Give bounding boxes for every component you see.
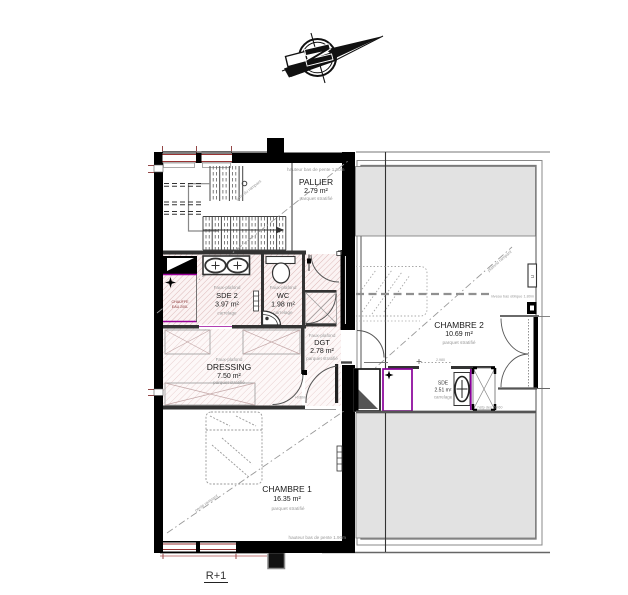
svg-text:Faux-plafond: Faux-plafond <box>270 285 297 290</box>
svg-text:carrelage: carrelage <box>273 310 293 315</box>
svg-text:parquet stratifié: parquet stratifié <box>306 356 338 361</box>
svg-text:Faux-plafond: Faux-plafond <box>214 285 241 290</box>
svg-text:SDE: SDE <box>438 381 449 387</box>
svg-text:hauteur bas de pente 1.90m: hauteur bas de pente 1.90m <box>287 167 345 172</box>
svg-text:DGT: DGT <box>314 338 330 347</box>
svg-text:10.69 m²: 10.69 m² <box>445 331 473 338</box>
svg-text:parquet stratifié: parquet stratifié <box>299 196 332 202</box>
svg-text:parquet stratifié: parquet stratifié <box>442 340 475 346</box>
svg-text:EAU 200L: EAU 200L <box>172 305 188 309</box>
svg-text:hauteur bas de pente 1.90m: hauteur bas de pente 1.90m <box>289 535 347 540</box>
svg-text:DRESSING: DRESSING <box>207 362 251 372</box>
svg-text:parquet stratifié: parquet stratifié <box>271 506 304 512</box>
svg-text:2.980: 2.980 <box>436 358 445 362</box>
svg-text:2.51 m²: 2.51 m² <box>435 388 452 394</box>
svg-text:PALLIER: PALLIER <box>299 177 333 187</box>
svg-text:parquet stratifié: parquet stratifié <box>213 380 245 385</box>
svg-text:1.98 m²: 1.98 m² <box>271 302 295 309</box>
svg-text:U: U <box>530 275 535 278</box>
svg-text:7.50 m²: 7.50 m² <box>217 373 241 380</box>
svg-text:CHAMBRE 2: CHAMBRE 2 <box>434 320 484 330</box>
svg-text:SDE 2: SDE 2 <box>216 291 238 300</box>
svg-text:carrelage: carrelage <box>434 395 453 400</box>
svg-text:CHAUFFE: CHAUFFE <box>172 300 190 304</box>
svg-text:+0.80m: +0.80m <box>295 396 306 400</box>
svg-text:3.97 m²: 3.97 m² <box>215 302 239 309</box>
svg-text:2.78 m²: 2.78 m² <box>310 348 334 355</box>
svg-text:hsfp des 2m60: hsfp des 2m60 <box>478 406 503 410</box>
svg-text:R+1: R+1 <box>206 570 227 582</box>
svg-text:WC: WC <box>277 291 290 300</box>
svg-text:carrelage: carrelage <box>217 311 237 316</box>
svg-text:CHAMBRE 1: CHAMBRE 1 <box>262 484 312 494</box>
svg-text:niveau bas oblique 1.80m: niveau bas oblique 1.80m <box>491 295 534 299</box>
svg-text:2.79 m²: 2.79 m² <box>304 188 328 195</box>
svg-text:16.35 m²: 16.35 m² <box>273 496 301 503</box>
